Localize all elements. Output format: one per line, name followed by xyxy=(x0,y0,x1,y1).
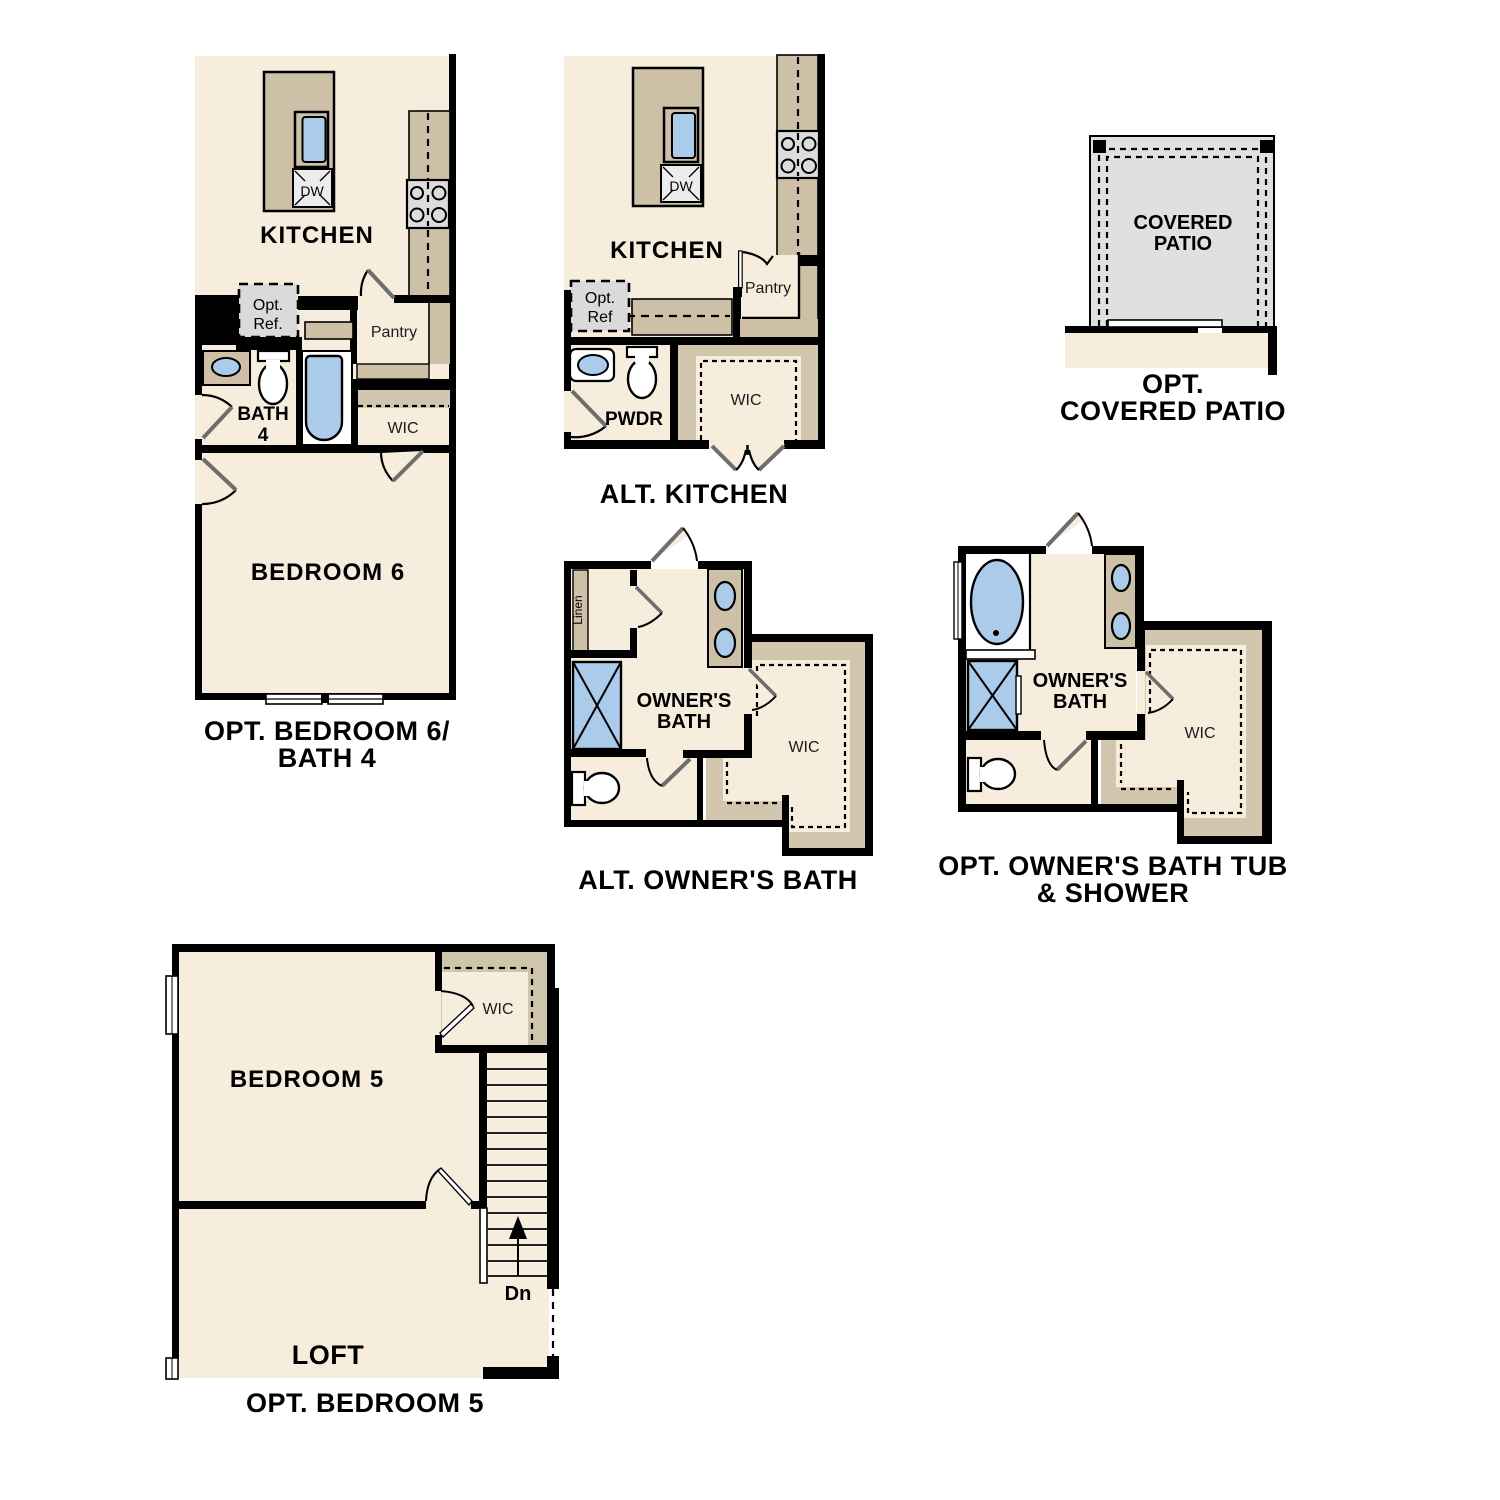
svg-text:Dn: Dn xyxy=(505,1283,532,1305)
svg-text:BATH: BATH xyxy=(1053,691,1107,713)
svg-text:ALT. OWNER'S BATH: ALT. OWNER'S BATH xyxy=(578,865,857,895)
svg-text:Pantry: Pantry xyxy=(371,324,417,341)
svg-text:DW: DW xyxy=(300,183,324,199)
svg-text:Ref: Ref xyxy=(588,309,613,326)
svg-text:BEDROOM 6: BEDROOM 6 xyxy=(251,559,405,586)
svg-text:OPT.: OPT. xyxy=(1142,369,1204,399)
svg-text:COVERED PATIO: COVERED PATIO xyxy=(1060,396,1286,426)
svg-text:OWNER'S: OWNER'S xyxy=(637,690,732,712)
svg-text:ALT. KITCHEN: ALT. KITCHEN xyxy=(600,479,789,509)
svg-text:KITCHEN: KITCHEN xyxy=(610,237,724,264)
svg-text:BEDROOM 5: BEDROOM 5 xyxy=(230,1066,384,1093)
svg-text:WIC: WIC xyxy=(730,392,761,409)
svg-text:Ref.: Ref. xyxy=(253,316,282,333)
svg-text:KITCHEN: KITCHEN xyxy=(260,222,374,249)
svg-text:DW: DW xyxy=(669,178,693,194)
svg-text:Pantry: Pantry xyxy=(745,280,791,297)
svg-text:WIC: WIC xyxy=(788,739,819,756)
svg-text:4: 4 xyxy=(258,425,269,446)
svg-text:OPT. OWNER'S BATH TUB: OPT. OWNER'S BATH TUB xyxy=(938,851,1287,881)
svg-text:WIC: WIC xyxy=(387,420,418,437)
svg-text:BATH 4: BATH 4 xyxy=(278,743,377,773)
svg-text:OPT. BEDROOM 6/: OPT. BEDROOM 6/ xyxy=(204,716,450,746)
svg-text:& SHOWER: & SHOWER xyxy=(1037,878,1190,908)
svg-text:OWNER'S: OWNER'S xyxy=(1033,670,1128,692)
svg-text:WIC: WIC xyxy=(482,1001,513,1018)
svg-text:WIC: WIC xyxy=(1184,725,1215,742)
svg-text:OPT. BEDROOM 5: OPT. BEDROOM 5 xyxy=(246,1388,484,1418)
svg-text:LOFT: LOFT xyxy=(292,1340,364,1370)
svg-text:PATIO: PATIO xyxy=(1154,233,1212,255)
svg-text:Opt.: Opt. xyxy=(585,290,615,307)
svg-text:Opt.: Opt. xyxy=(253,297,283,314)
svg-text:COVERED: COVERED xyxy=(1134,212,1233,234)
svg-text:Linen: Linen xyxy=(571,595,585,624)
svg-text:BATH: BATH xyxy=(237,404,288,425)
svg-text:BATH: BATH xyxy=(657,711,711,733)
svg-text:PWDR: PWDR xyxy=(605,409,663,430)
